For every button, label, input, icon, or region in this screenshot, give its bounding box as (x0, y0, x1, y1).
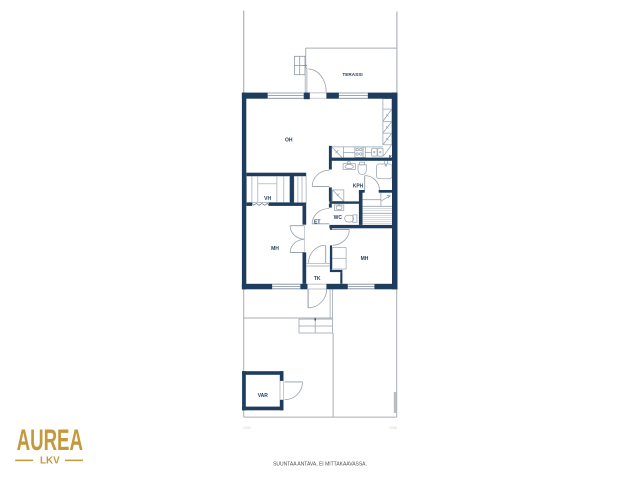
svg-text:AUREA: AUREA (17, 424, 83, 457)
svg-text:MH: MH (361, 256, 369, 262)
svg-text:OH: OH (285, 138, 293, 144)
svg-text:KPH: KPH (353, 183, 364, 189)
svg-text:1084: 1084 (243, 426, 251, 430)
svg-text:VAR: VAR (258, 393, 269, 399)
svg-text:WC: WC (334, 215, 343, 221)
svg-text:VH: VH (264, 196, 271, 202)
svg-text:SUUNTAA ANTAVA, EI MITTAKAAVAS: SUUNTAA ANTAVA, EI MITTAKAAVASSA. (273, 461, 367, 467)
svg-text:MH: MH (271, 246, 279, 252)
svg-text:LKV: LKV (40, 456, 60, 467)
svg-text:TERASSI: TERASSI (342, 72, 362, 77)
svg-text:1085: 1085 (389, 426, 397, 430)
svg-text:TK: TK (314, 276, 321, 282)
svg-text:ET: ET (314, 219, 320, 225)
